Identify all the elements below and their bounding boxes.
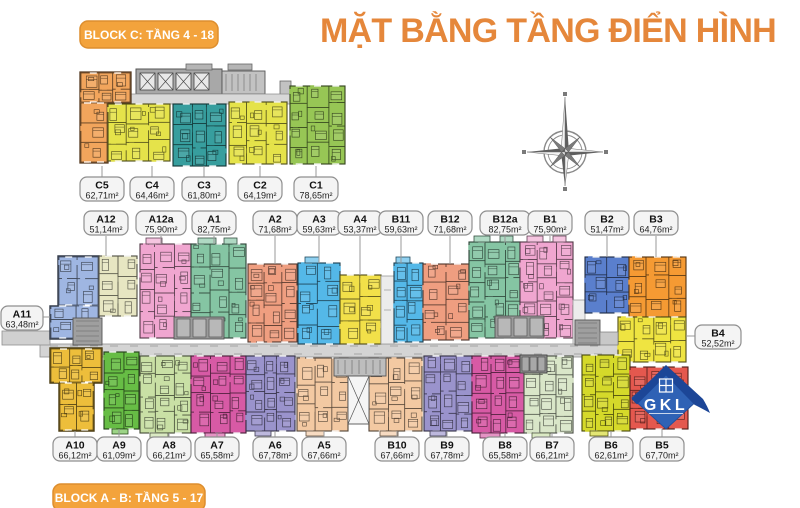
svg-text:67,78m²: 67,78m²	[430, 451, 463, 461]
svg-text:62,61m²: 62,61m²	[594, 451, 627, 461]
svg-text:67,66m²: 67,66m²	[307, 451, 340, 461]
svg-text:62,71m²: 62,71m²	[85, 191, 118, 201]
svg-text:GKL: GKL	[644, 397, 688, 414]
svg-text:75,90m²: 75,90m²	[533, 225, 566, 235]
svg-text:53,37m²: 53,37m²	[343, 225, 376, 235]
svg-text:64,76m²: 64,76m²	[639, 225, 672, 235]
svg-text:51,47m²: 51,47m²	[590, 225, 623, 235]
svg-text:65,58m²: 65,58m²	[488, 451, 521, 461]
svg-text:BLOCK C: TẦNG 4 - 18: BLOCK C: TẦNG 4 - 18	[84, 27, 214, 42]
svg-text:65,58m²: 65,58m²	[200, 451, 233, 461]
svg-text:64,46m²: 64,46m²	[135, 191, 168, 201]
svg-text:51,14m²: 51,14m²	[89, 225, 122, 235]
svg-text:71,68m²: 71,68m²	[433, 225, 466, 235]
svg-text:82,75m²: 82,75m²	[197, 225, 230, 235]
svg-text:78,65m²: 78,65m²	[299, 191, 332, 201]
svg-text:75,90m²: 75,90m²	[144, 225, 177, 235]
svg-text:67,70m²: 67,70m²	[645, 451, 678, 461]
svg-text:59,63m²: 59,63m²	[384, 225, 417, 235]
svg-text:61,09m²: 61,09m²	[102, 451, 135, 461]
svg-text:MẶT BẰNG TẦNG ĐIỂN HÌNH: MẶT BẰNG TẦNG ĐIỂN HÌNH	[320, 12, 776, 50]
svg-text:66,21m²: 66,21m²	[535, 451, 568, 461]
svg-text:66,12m²: 66,12m²	[58, 451, 91, 461]
svg-text:66,21m²: 66,21m²	[152, 451, 185, 461]
svg-text:52,52m²: 52,52m²	[701, 339, 734, 349]
svg-text:67,78m²: 67,78m²	[258, 451, 291, 461]
svg-text:71,68m²: 71,68m²	[258, 225, 291, 235]
svg-text:63,48m²: 63,48m²	[5, 320, 38, 330]
svg-text:64,19m²: 64,19m²	[243, 191, 276, 201]
svg-text:59,63m²: 59,63m²	[302, 225, 335, 235]
svg-text:67,66m²: 67,66m²	[380, 451, 413, 461]
svg-text:BLOCK A - B: TẦNG 5 - 17: BLOCK A - B: TẦNG 5 - 17	[55, 490, 204, 505]
svg-text:82,75m²: 82,75m²	[488, 225, 521, 235]
svg-text:61,80m²: 61,80m²	[187, 191, 220, 201]
